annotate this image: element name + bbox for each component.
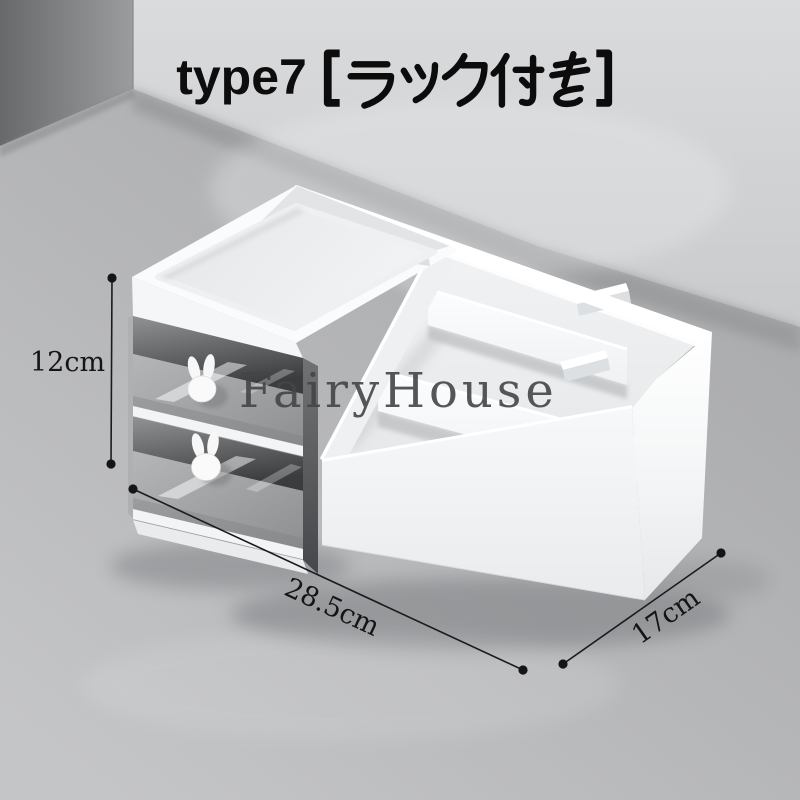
height-dimension-line: [111, 278, 112, 464]
product-photo: type7 type: [0, 0, 800, 800]
scene-graphic: [0, 0, 800, 800]
drawer-unit: [128, 316, 318, 574]
